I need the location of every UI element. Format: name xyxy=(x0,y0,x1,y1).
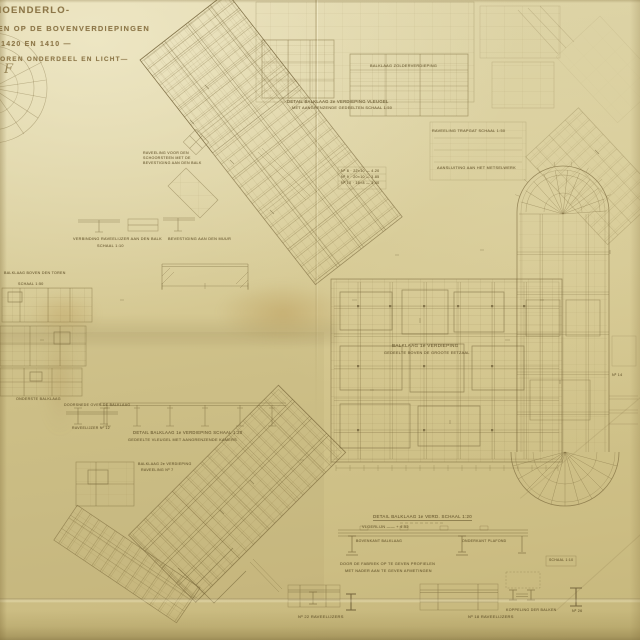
note-chimney-3: BEVESTIGING AAN DEN BALK xyxy=(143,161,202,165)
beam-details-row-upper xyxy=(78,218,195,232)
caption-verbinding: VERBINDING RAVEELIJZER AAN DEN BALK xyxy=(73,237,162,241)
title-line-4: DOOREN ONDERDEEL EN LICHT— xyxy=(0,56,129,63)
pencil-mark-f: F xyxy=(4,62,13,77)
beam-coupling-detail xyxy=(506,572,540,600)
caption-onderkant: ONDERKANT PLAFOND xyxy=(462,539,507,543)
caption-doorsnede: DOORSNEDE OVER DE BALKLAAG xyxy=(64,403,130,407)
caption-raveelijzers-22: Nº 22 RAVEELIJZERS xyxy=(298,614,344,619)
caption-onderste-balklaag: ONDERSTE BALKLAAG xyxy=(16,397,61,401)
caption-detail-2e-sub: MET AANGRENZENDE GEDEELTEN SCHAAL 1:50 xyxy=(292,106,392,110)
paper-right-edge xyxy=(630,0,640,640)
note-chimney-2: SCHOORSTEEN MET DE xyxy=(143,156,191,160)
caption-detail-1e-verdieping: DETAIL BALKLAAG 1e VERDIEPING SCHAAL 1:2… xyxy=(133,430,242,435)
caption-schaal-110: SCHAAL 1:10 xyxy=(97,244,124,248)
caption-detail-1e-sub: GEDEELTE VLEUGEL MET AANGRENZENDE KAMERS xyxy=(128,438,237,442)
caption-raveeling-7: RAVEELING Nº 7 xyxy=(141,468,173,472)
caption-vloerlijn: VLOERLIJN ―― + 4.52 xyxy=(362,525,409,529)
caption-bevestiging-muur: BEVESTIGING AAN DEN MUUR xyxy=(168,237,231,241)
caption-fabriek-2: MET NADER AAN TE GEVEN AFMETINGEN xyxy=(345,569,432,573)
circular-detail-left-edge xyxy=(0,33,47,143)
title-line-2: AGEN OP DE BOVENVERDIEPINGEN xyxy=(0,24,150,33)
vertical-fold-highlight xyxy=(317,0,318,380)
caption-balklaag-1e-sub: GEDEELTE BOVEN DE GROOTE EETZAAL xyxy=(384,351,470,355)
schedule-row-3: Nº 10 · 18×8 — 3.40 xyxy=(341,181,379,185)
caption-raveelijzers-18: Nº 18 RAVEELIJZERS xyxy=(468,614,514,619)
label-aansluiting: AANSLUITING AAN HET METSELWERK xyxy=(437,166,516,170)
caption-detail-schaal-120: DETAIL BALKLAAG 1e VERD. SCHAAL 1:20 xyxy=(373,514,472,521)
caption-koppeling: KOPPELING DER BALKEN xyxy=(506,608,557,612)
schedule-row-1: Nº 8 · 22×10 — 4.20 xyxy=(341,169,379,173)
raveel-detail-bottom-mid xyxy=(420,584,498,610)
note-chimney-1: RAVEELING VOOR DEN xyxy=(143,151,189,155)
caption-bovenkant: BOVENKANT BALKLAAG xyxy=(356,539,402,543)
caption-fabriek-1: DOOR DE FABRIEK OP TE GEVEN PROFIELEN xyxy=(340,562,435,566)
paper-shade-lower-left xyxy=(0,332,324,600)
caption-no-26: Nº 26 xyxy=(572,609,582,613)
caption-raveelijzer-12: RAVEELIJZER Nº 12 xyxy=(72,426,110,430)
caption-detail-2e-verdieping: DETAIL BALKLAAG 2e VERDIEPING VLEUGEL xyxy=(287,99,389,104)
wing-fragment-top-right-2 xyxy=(556,16,640,123)
paper-left-edge xyxy=(0,0,7,640)
caption-no-14: Nº 14 xyxy=(612,373,622,377)
caption-balklaag-2e-v: BALKLAAG 2e VERDIEPING xyxy=(138,462,192,466)
caption-schaal-box: SCHAAL 1:10 xyxy=(549,558,573,562)
blueprint-scan: -HOENDERLO- AGEN OP DE BOVENVERDIEPINGEN… xyxy=(0,0,640,640)
title-line-1: -HOENDERLO- xyxy=(0,5,70,16)
caption-balklaag-1e: BALKLAAG 1e VERDIEPING xyxy=(392,343,459,348)
caption-toren: BALKLAAG BOVEN DEN TOREN xyxy=(4,271,66,275)
title-line-3: Nº 1420 EN 1410 — xyxy=(0,41,72,48)
horizontal-fold-crease xyxy=(0,598,640,603)
schedule-row-2: Nº 9 · 20×10 — 3.85 xyxy=(341,175,379,179)
label-zolderverdieping: BALKLAAG ZOLDERVERDIEPING xyxy=(370,64,437,68)
paper-top-edge xyxy=(0,0,640,3)
label-raveeling-trapgat: RAVEELING TRAPGAT SCHAAL 1:50 xyxy=(432,129,505,133)
caption-toren-schaal: SCHAAL 1:50 xyxy=(18,282,44,286)
